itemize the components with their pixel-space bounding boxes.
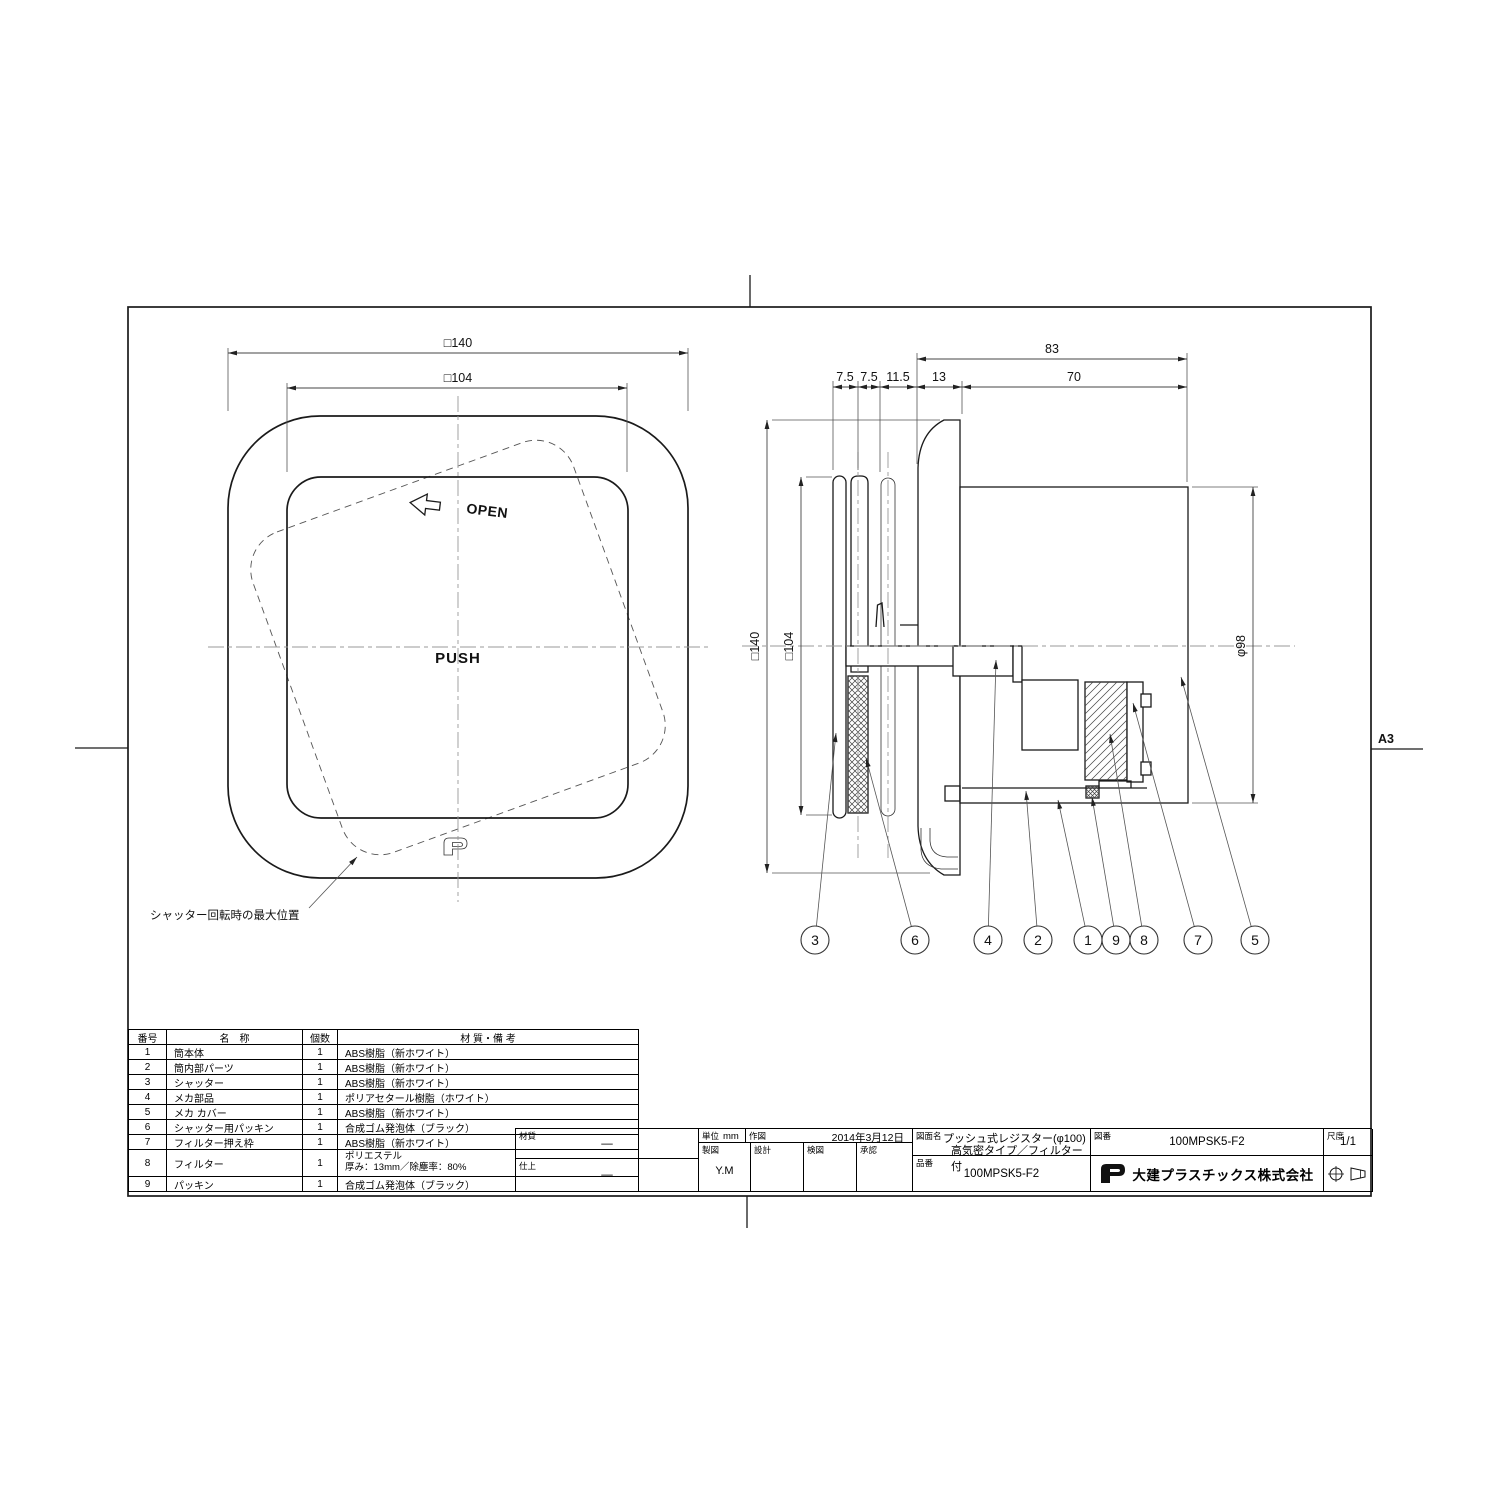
arrowhead-icon [907,385,916,390]
third-angle-projection-icon [1327,1163,1369,1185]
unit-cell: 単位 mm [699,1129,746,1143]
balloon-layer: 364219875 [801,926,1269,954]
arrowhead-icon [1251,794,1256,803]
dim-label: □104 [782,632,796,660]
push-shaft [846,646,956,666]
drafting-cell: 製図 Y.M [699,1143,751,1192]
drawn-date-cell: 作図 2014年3月12日 [746,1129,913,1143]
drawn-label: 作図 [749,1130,766,1142]
scale-value: 1/1 [1324,1129,1372,1155]
finish-value: — [516,1159,698,1191]
company-logo-icon [1100,1163,1126,1184]
balloon-number: 4 [984,932,992,948]
approval-cell: 承認 [857,1143,913,1192]
arrowhead-icon [618,386,627,391]
table-cell: パッキン [167,1177,303,1192]
parts-table-row: 4メカ部品1ポリアセタール樹脂（ホワイト） [129,1090,639,1105]
table-cell: メカ部品 [167,1090,303,1105]
material-value: — [516,1129,698,1158]
open-arrow-icon [409,492,441,516]
table-cell: 筒内部パーツ [167,1060,303,1075]
company-cell: 大建プラスチックス株式会社 [1091,1156,1324,1192]
cad-drawing: □140□104837.57.511.51370□140□104φ98 3642… [0,0,1500,1500]
table-cell: 1 [303,1045,338,1060]
approval-label: 承認 [860,1144,877,1156]
table-cell: メカ カバー [167,1105,303,1120]
table-cell: 1 [303,1075,338,1090]
arrowhead-icon [679,351,688,356]
arrowhead-icon [833,385,842,390]
duct-body [960,487,1188,803]
table-cell: フィルター押え枠 [167,1135,303,1150]
dim-label: 11.5 [886,370,909,384]
table-cell: 1 [303,1177,338,1192]
sheet-size-label: A3 [1378,732,1394,746]
table-cell: 4 [129,1090,167,1105]
table-cell: 6 [129,1120,167,1135]
projection-symbol-cell [1324,1156,1373,1192]
table-cell: 7 [129,1135,167,1150]
table-cell: 1 [303,1150,338,1177]
arrowhead-icon [871,385,880,390]
dim-label: 7.5 [860,370,877,384]
balloon-number: 9 [1112,932,1120,948]
table-cell: 1 [303,1105,338,1120]
front-panel [287,477,628,818]
mech-block [1022,680,1078,750]
side-view [742,420,1295,875]
dim-label: □140 [444,336,472,350]
table-cell: シャッター [167,1075,303,1090]
company-name: 大建プラスチックス株式会社 [1132,1164,1313,1184]
arrowhead-icon [1251,487,1256,496]
table-cell: 9 [129,1177,167,1192]
dim-label: 13 [932,370,946,384]
header-cell: 材 質・備 考 [338,1030,639,1045]
unit-value: mm [723,1131,739,1142]
table-cell: ABS樹脂（新ホワイト） [338,1105,639,1120]
label-layer: OPENPUSHシャッター回転時の最大位置A3 [150,500,1394,922]
design-label: 設計 [754,1144,771,1156]
mech-boss [953,646,1013,676]
drawing-name-cell: 図面名 プッシュ式レジスター(φ100) 高気密タイプ／フィルター付 [913,1129,1091,1156]
table-cell: ABS樹脂（新ホワイト） [338,1060,639,1075]
table-cell: フィルター [167,1150,303,1177]
drawing-sheet: □140□104837.57.511.51370□140□104φ98 3642… [0,0,1500,1500]
parts-table-row: 1筒本体1ABS樹脂（新ホワイト） [129,1045,639,1060]
table-cell: 1 [303,1120,338,1135]
dim-label: 7.5 [836,370,853,384]
drafting-value: Y.M [699,1143,750,1191]
table-cell: 筒本体 [167,1045,303,1060]
material-cell: 材質 — [516,1129,699,1159]
header-cell: 名 称 [167,1030,303,1045]
balloon-number: 7 [1194,932,1202,948]
table-cell: ABS樹脂（新ホワイト） [338,1045,639,1060]
balloon-number: 1 [1084,932,1092,948]
title-block: 材質 — 仕上 — 単位 mm 作図 2014年3月12日 製図 Y.M 設計 … [515,1128,1372,1192]
shutter-plate [833,476,846,818]
dim-label: 70 [1067,370,1081,384]
dim-label: φ98 [1234,635,1248,657]
table-cell: ABS樹脂（新ホワイト） [338,1075,639,1090]
arrowhead-icon [962,385,971,390]
arrowhead-icon [799,477,804,486]
table-cell: ポリアセタール樹脂（ホワイト） [338,1090,639,1105]
parts-table-row: 5メカ カバー1ABS樹脂（新ホワイト） [129,1105,639,1120]
push-label: PUSH [435,650,481,667]
part-no-cell: 品番 100MPSK5-F2 [913,1156,1091,1192]
front-view [208,396,710,902]
arrowhead-icon [799,806,804,815]
unit-label: 単位 [702,1130,719,1142]
arrowhead-icon [228,351,237,356]
table-cell: 1 [303,1135,338,1150]
dim-label: 83 [1045,342,1059,356]
arrowhead-icon [765,420,770,429]
scale-cell: 尺度 1/1 [1324,1129,1373,1156]
arrowhead-icon [953,385,962,390]
table-cell: 1 [303,1060,338,1075]
shutter-note-label: シャッター回転時の最大位置 [150,908,300,922]
shutter-shaft-tip [876,603,884,627]
arrowhead-icon [880,385,889,390]
table-cell: 1 [303,1090,338,1105]
balloon-number: 5 [1251,932,1259,948]
check-cell: 検図 [804,1143,857,1192]
mech-tab [1013,646,1022,682]
drawing-no-value: 100MPSK5-F2 [1091,1129,1323,1155]
table-cell: 2 [129,1060,167,1075]
parts-table-header: 番号名 称個数材 質・備 考 [129,1030,639,1045]
part-no-value: 100MPSK5-F2 [913,1156,1090,1191]
check-label: 検図 [807,1144,824,1156]
drawing-page: { "sheet": { "size_label": "A3" }, "fron… [0,0,1500,1500]
finish-cell: 仕上 — [516,1159,699,1192]
balloon-number: 3 [811,932,819,948]
drawing-no-cell: 図番 100MPSK5-F2 [1091,1129,1324,1156]
arrowhead-icon [849,385,858,390]
table-cell: 3 [129,1075,167,1090]
dim-label: □140 [748,632,762,660]
panel-logo-icon [444,838,467,855]
table-cell: シャッター用パッキン [167,1120,303,1135]
header-cell: 番号 [129,1030,167,1045]
table-cell: 1 [129,1045,167,1060]
arrowhead-icon [1178,357,1187,362]
parts-table-row: 2筒内部パーツ1ABS樹脂（新ホワイト） [129,1060,639,1075]
shutter-back-plate [851,476,868,672]
arrowhead-icon [917,357,926,362]
table-cell: 5 [129,1105,167,1120]
arrowhead-icon [858,385,867,390]
table-cell: 8 [129,1150,167,1177]
balloon-number: 6 [911,932,919,948]
dim-label: □104 [444,371,472,385]
parts-table-row: 3シャッター1ABS樹脂（新ホワイト） [129,1075,639,1090]
arrowhead-icon [287,386,296,391]
balloon-number: 2 [1034,932,1042,948]
arrowhead-icon [765,864,770,873]
arrowhead-icon [1178,385,1187,390]
open-label: OPEN [466,500,509,521]
design-cell: 設計 [751,1143,804,1192]
header-cell: 個数 [303,1030,338,1045]
balloon-number: 8 [1140,932,1148,948]
drawing-name-label: 図面名 [916,1130,942,1142]
